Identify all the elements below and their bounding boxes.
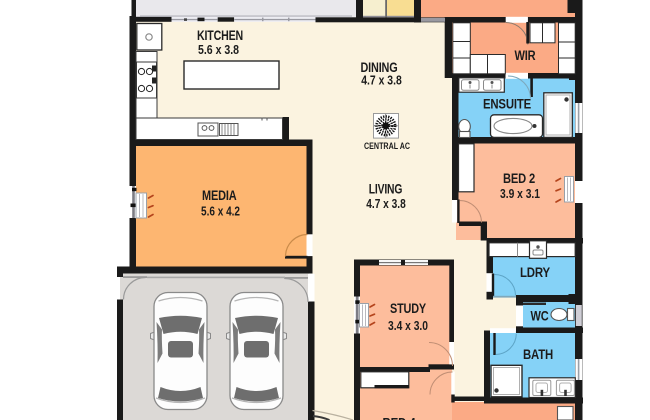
- svg-text:WIR: WIR: [515, 48, 536, 63]
- svg-text:BATH: BATH: [523, 347, 553, 362]
- svg-text:BED 4: BED 4: [383, 416, 417, 420]
- svg-text:5.6 x 3.8: 5.6 x 3.8: [198, 42, 239, 57]
- svg-text:BED 2: BED 2: [503, 171, 535, 186]
- svg-text:WC: WC: [531, 309, 549, 324]
- svg-text:LIVING: LIVING: [369, 182, 403, 197]
- svg-text:STUDY: STUDY: [390, 301, 426, 316]
- svg-text:3.9 x 3.1: 3.9 x 3.1: [500, 186, 540, 201]
- svg-text:ENSUITE: ENSUITE: [483, 97, 531, 112]
- svg-text:LDRY: LDRY: [520, 265, 550, 280]
- svg-text:5.6 x 4.2: 5.6 x 4.2: [201, 204, 240, 219]
- svg-text:MEDIA: MEDIA: [202, 188, 237, 203]
- svg-text:4.7 x 3.8: 4.7 x 3.8: [366, 196, 406, 211]
- svg-text:KITCHEN: KITCHEN: [197, 28, 243, 43]
- svg-text:3.4 x 3.0: 3.4 x 3.0: [388, 318, 428, 333]
- svg-text:4.7 x 3.8: 4.7 x 3.8: [361, 73, 402, 88]
- svg-text:CENTRAL AC: CENTRAL AC: [364, 141, 410, 151]
